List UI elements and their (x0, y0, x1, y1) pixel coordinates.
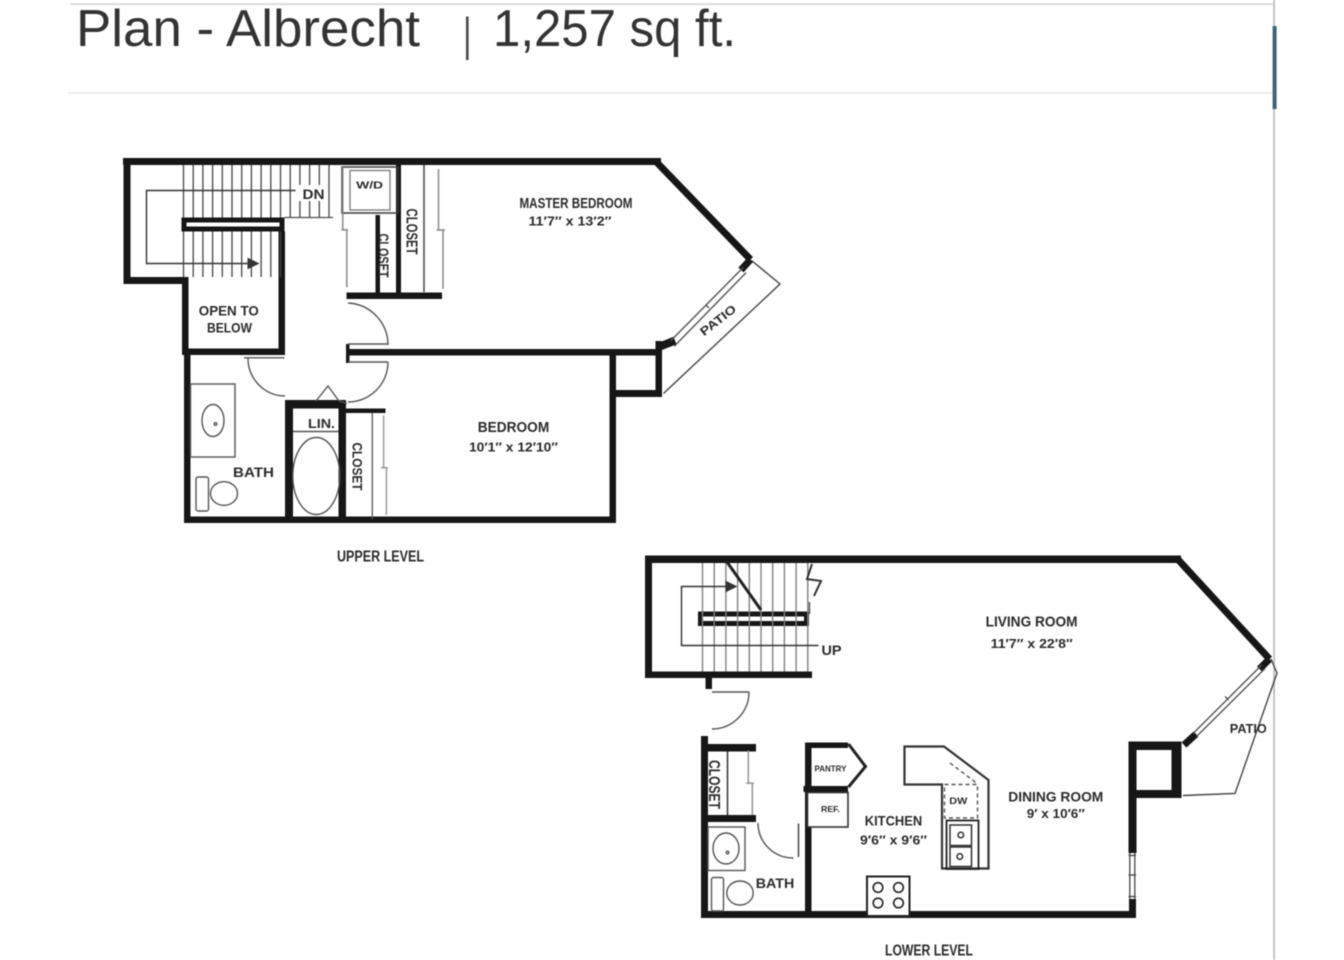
svg-text:W/D: W/D (356, 180, 384, 192)
svg-text:CLOSET: CLOSET (375, 234, 391, 278)
svg-text:CLOSET: CLOSET (403, 209, 420, 255)
svg-text:UP: UP (822, 642, 842, 658)
svg-text:11′7″ x 13′2″: 11′7″ x 13′2″ (529, 214, 612, 229)
svg-text:CLOSET: CLOSET (705, 760, 722, 809)
svg-text:REF.: REF. (821, 804, 840, 814)
svg-text:DW: DW (949, 796, 967, 807)
svg-text:11′7″ x 22′8″: 11′7″ x 22′8″ (991, 636, 1073, 651)
svg-text:BELOW: BELOW (207, 320, 253, 336)
svg-text:BATH: BATH (233, 464, 274, 480)
svg-text:DINING ROOM: DINING ROOM (1008, 789, 1103, 805)
svg-text:OPEN TO: OPEN TO (199, 303, 259, 319)
svg-text:UPPER LEVEL: UPPER LEVEL (337, 549, 424, 566)
svg-text:BATH: BATH (756, 875, 795, 891)
svg-text:Plan - Albrecht: Plan - Albrecht (76, 0, 421, 58)
svg-text:KITCHEN: KITCHEN (865, 813, 923, 829)
svg-text:BEDROOM: BEDROOM (478, 420, 550, 436)
svg-text:MASTER BEDROOM: MASTER BEDROOM (520, 196, 633, 212)
svg-text:9′ x 10′6″: 9′ x 10′6″ (1027, 806, 1085, 821)
svg-text:DN: DN (303, 186, 325, 202)
svg-text:LIN.: LIN. (308, 416, 335, 431)
svg-text:CLOSET: CLOSET (350, 443, 366, 491)
svg-text:PANTRY: PANTRY (815, 764, 847, 774)
svg-text:1,257 sq ft.: 1,257 sq ft. (493, 0, 736, 58)
svg-text:9′6″ x 9′6″: 9′6″ x 9′6″ (860, 833, 927, 848)
svg-text:LOWER LEVEL: LOWER LEVEL (885, 943, 973, 960)
svg-text:10′1″ x 12′10″: 10′1″ x 12′10″ (469, 440, 558, 455)
svg-text:LIVING ROOM: LIVING ROOM (986, 614, 1078, 631)
svg-text:PATIO: PATIO (1230, 722, 1267, 736)
